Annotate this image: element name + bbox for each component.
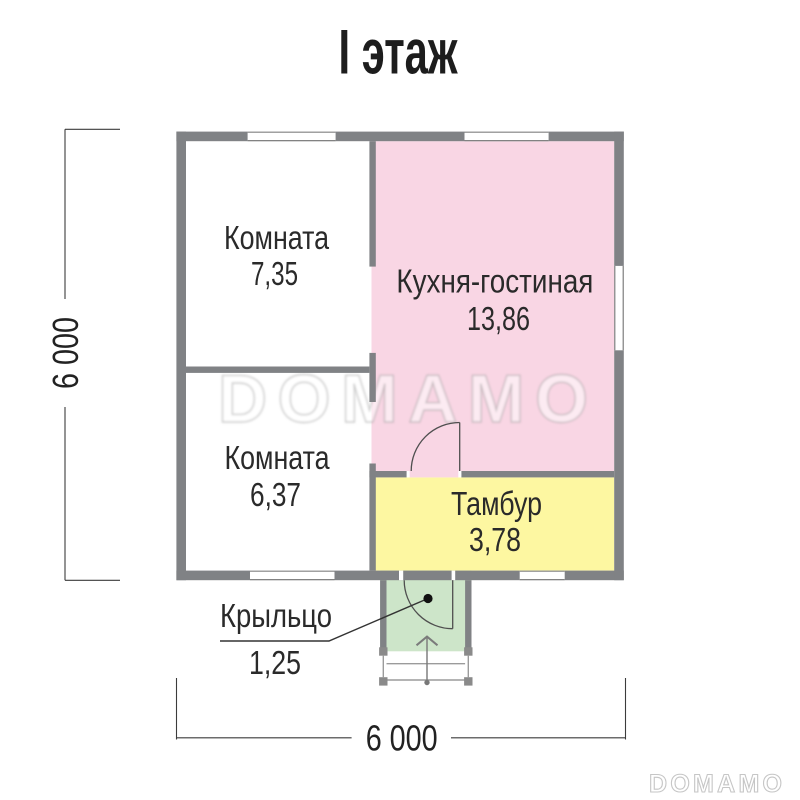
svg-text:7,35: 7,35 xyxy=(251,255,298,292)
svg-text:6 000: 6 000 xyxy=(45,317,86,389)
svg-text:Тамбур: Тамбур xyxy=(451,485,542,522)
svg-text:6 000: 6 000 xyxy=(366,717,438,758)
svg-text:Крыльцо: Крыльцо xyxy=(220,597,332,634)
svg-text:3,78: 3,78 xyxy=(469,521,521,558)
svg-text:I этаж: I этаж xyxy=(339,18,459,88)
svg-text:Комната: Комната xyxy=(225,439,331,476)
svg-text:Кухня-гостиная: Кухня-гостиная xyxy=(396,263,593,300)
svg-text:1,25: 1,25 xyxy=(249,644,301,681)
svg-text:6,37: 6,37 xyxy=(250,476,301,513)
svg-text:Комната: Комната xyxy=(224,219,330,256)
svg-text:13,86: 13,86 xyxy=(467,300,530,337)
